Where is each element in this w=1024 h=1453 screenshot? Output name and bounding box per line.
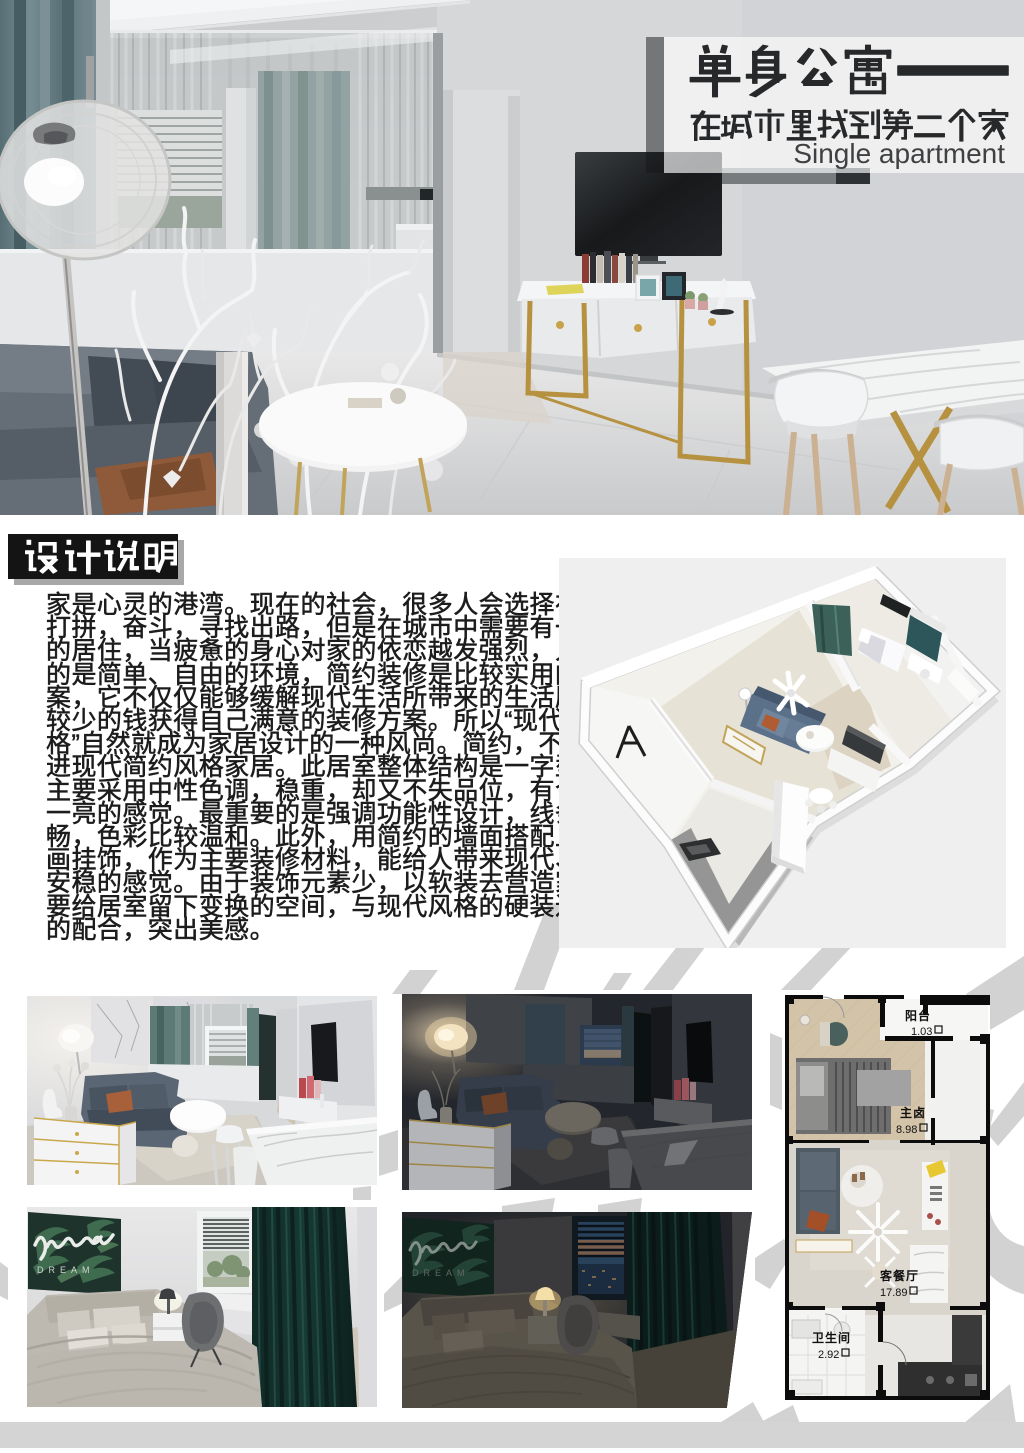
svg-text:1.03: 1.03: [911, 1026, 932, 1038]
svg-text:主卤: 主卤: [900, 1105, 926, 1120]
svg-text:2.92: 2.92: [818, 1349, 839, 1361]
svg-text:DREAM: DREAM: [412, 1268, 470, 1278]
svg-text:DREAM: DREAM: [37, 1265, 95, 1275]
svg-text:Single apartment: Single apartment: [793, 138, 1005, 169]
svg-text:卫生间: 卫生间: [812, 1330, 851, 1345]
svg-text:阳台: 阳台: [905, 1008, 931, 1023]
svg-text:17.89: 17.89: [880, 1287, 908, 1299]
svg-text:客餐厅: 客餐厅: [879, 1268, 919, 1283]
svg-text:8.98: 8.98: [896, 1124, 917, 1136]
